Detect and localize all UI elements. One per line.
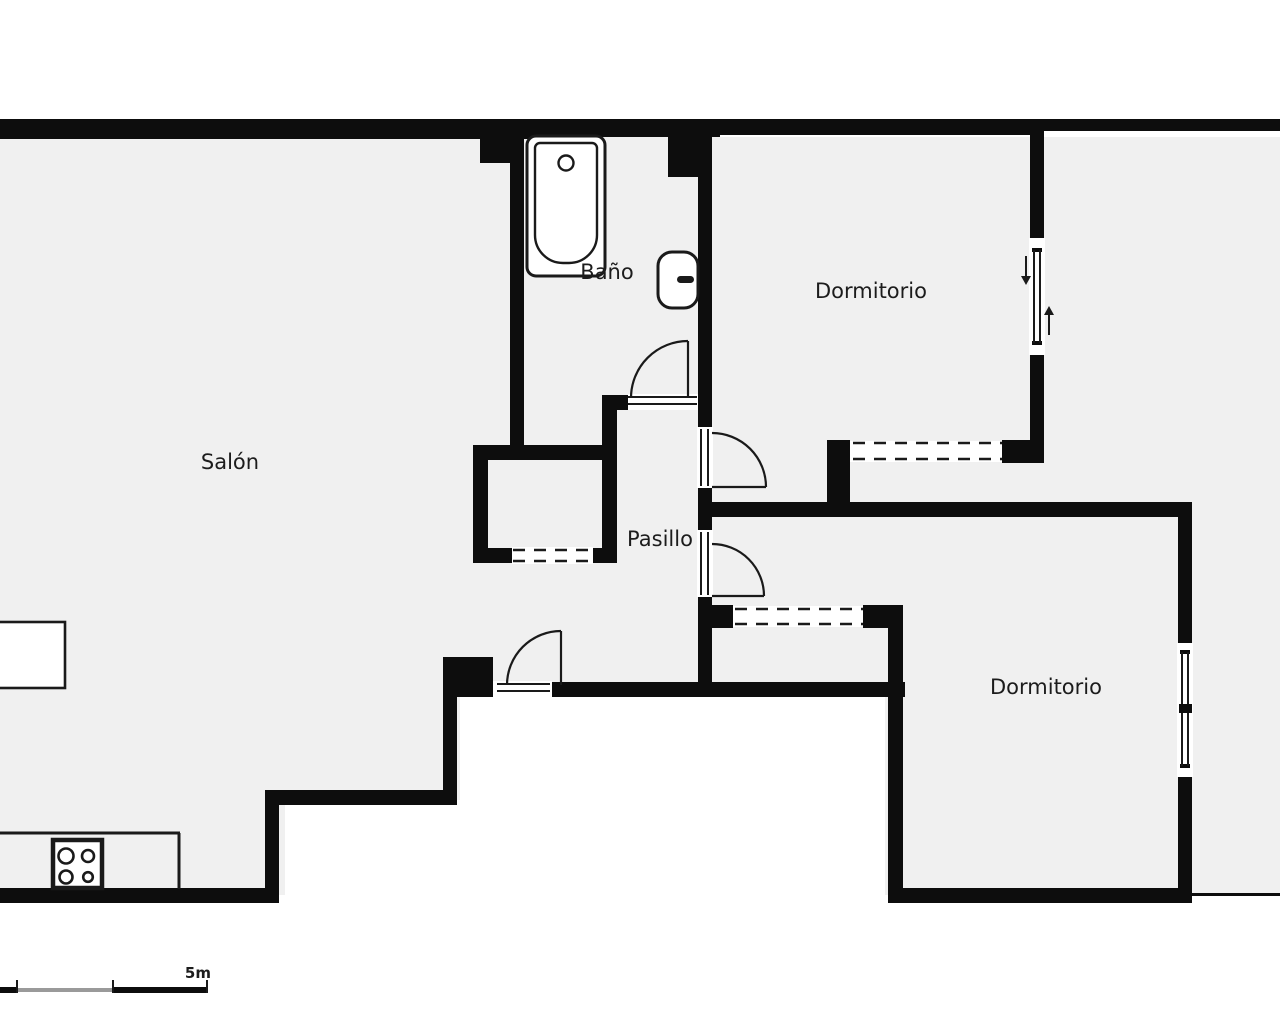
table-icon	[0, 622, 65, 688]
wall-segment	[0, 888, 279, 903]
wall-segment	[1030, 119, 1280, 131]
wall-segment	[443, 682, 457, 805]
scale-bar: 5m	[0, 964, 211, 993]
wall-segment	[593, 548, 617, 563]
wall-segment	[888, 628, 903, 891]
scale-bar-segment	[0, 987, 17, 993]
floor-hall-lower	[698, 510, 905, 690]
wall-segment	[1030, 131, 1044, 240]
wall-segment	[510, 137, 524, 445]
salon-label: Salón	[201, 450, 259, 474]
stove-icon	[53, 840, 102, 888]
wall-segment	[1178, 775, 1192, 903]
wall-segment	[698, 119, 1044, 135]
wall-segment	[888, 888, 1192, 903]
wall-segment	[863, 605, 903, 628]
wall-segment	[1030, 353, 1044, 442]
wall-segment	[698, 605, 733, 628]
wall-segment	[473, 548, 512, 563]
scale-bar-segment	[113, 987, 208, 993]
dormitorio-top-label: Dormitorio	[815, 279, 927, 303]
scale-bar-segment	[17, 988, 113, 992]
wall-segment	[1178, 502, 1192, 645]
wall-segment	[827, 440, 850, 517]
floor-salon-step	[279, 137, 460, 800]
floor-plan: Salón Baño Pasillo Dormitorio Dormitorio…	[0, 0, 1280, 1024]
bano-label: Baño	[580, 260, 633, 284]
toilet-icon	[658, 252, 698, 308]
window-bottom-bedroom-icon	[1177, 643, 1193, 777]
wall-segment	[0, 119, 530, 139]
scale-bar-label: 5m	[185, 964, 211, 982]
wall-segment	[480, 137, 510, 163]
wall-segment	[602, 395, 617, 563]
wall-segment	[698, 502, 1192, 517]
floor-salon	[0, 137, 285, 895]
neighbor-boundary-line	[1192, 893, 1280, 896]
wall-segment	[550, 682, 905, 697]
wall-segment	[473, 445, 488, 563]
dormitorio-bottom-label: Dormitorio	[990, 675, 1102, 699]
bathtub-icon	[527, 136, 605, 276]
floor-plan-canvas: Salón Baño Pasillo Dormitorio Dormitorio…	[0, 0, 1280, 1024]
scale-bar-tick	[112, 980, 114, 993]
pasillo-label: Pasillo	[627, 527, 693, 551]
wall-segment	[265, 790, 279, 890]
scale-bar-tick	[16, 980, 18, 993]
wall-segment	[698, 131, 712, 427]
wall-segment	[473, 445, 617, 460]
wall-segment	[265, 790, 457, 805]
wall-segment	[1002, 440, 1044, 463]
window-top-bedroom-icon	[1029, 238, 1045, 355]
